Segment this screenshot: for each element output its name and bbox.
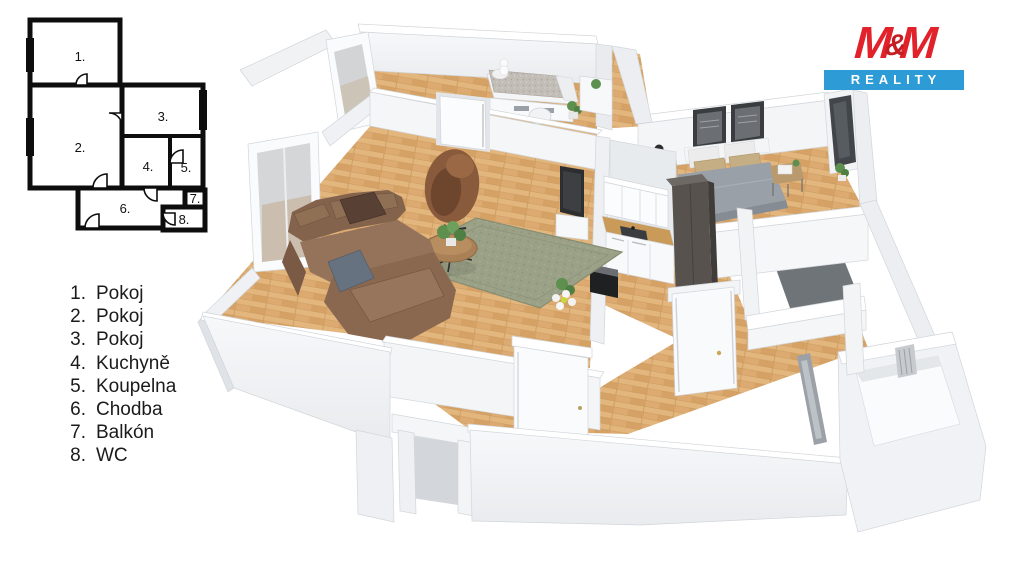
legend-item: 3.Pokoj: [62, 328, 176, 351]
wall: [853, 90, 877, 208]
legend-item: 1.Pokoj: [62, 282, 176, 305]
room-number: 1.: [75, 49, 86, 64]
legend-number: 5.: [62, 375, 86, 398]
legend-label: Koupelna: [96, 375, 176, 398]
legend-number: 6.: [62, 398, 86, 421]
entrance-door: [392, 414, 474, 516]
plant: [591, 79, 601, 89]
room-legend: 1.Pokoj 2.Pokoj 3.Pokoj 4.Kuchyně 5.Koup…: [62, 282, 176, 468]
legend-item: 6.Chodba: [62, 398, 176, 421]
legend-label: Balkón: [96, 421, 154, 444]
schematic-room-2: [30, 85, 122, 188]
mm-reality-logo: M&M REALITY: [824, 17, 964, 90]
room-number: 3.: [158, 109, 169, 124]
door: [436, 92, 490, 152]
room-number: 2.: [75, 140, 86, 155]
legend-number: 1.: [62, 282, 86, 305]
radiator: [895, 344, 917, 378]
legend-number: 2.: [62, 305, 86, 328]
legend-item: 2.Pokoj: [62, 305, 176, 328]
legend-number: 7.: [62, 421, 86, 444]
legend-item: 7.Balkón: [62, 421, 176, 444]
logo-brand-text: M&M: [822, 17, 966, 69]
legend-label: Chodba: [96, 398, 163, 421]
legend-number: 3.: [62, 328, 86, 351]
door-frame: [843, 283, 864, 375]
room-number: 5.: [181, 160, 192, 175]
legend-item: 4.Kuchyně: [62, 352, 176, 375]
legend-label: Kuchyně: [96, 352, 170, 375]
room-number: 8.: [179, 212, 190, 227]
legend-item: 8.WC: [62, 444, 176, 467]
legend-item: 5.Koupelna: [62, 375, 176, 398]
floorplan-page: 1. 2. 3. 4. 5. 6. 7. 8. 1.Pokoj 2.Pokoj …: [0, 0, 1024, 576]
legend-label: WC: [96, 444, 128, 467]
legend-label: Pokoj: [96, 282, 144, 305]
door: [668, 280, 740, 396]
legend-label: Pokoj: [96, 328, 144, 351]
room-number: 7.: [190, 191, 201, 206]
room-number: 6.: [120, 201, 131, 216]
floorplan-2d-schematic: 1. 2. 3. 4. 5. 6. 7. 8.: [0, 0, 230, 250]
logo-reality-bar: REALITY: [824, 70, 964, 90]
room-number: 4.: [143, 159, 154, 174]
glass-door: [797, 353, 827, 445]
legend-number: 8.: [62, 444, 86, 467]
tv-unit: [556, 166, 588, 240]
legend-label: Pokoj: [96, 305, 144, 328]
logo-ampersand: &: [883, 23, 904, 69]
legend-number: 4.: [62, 352, 86, 375]
